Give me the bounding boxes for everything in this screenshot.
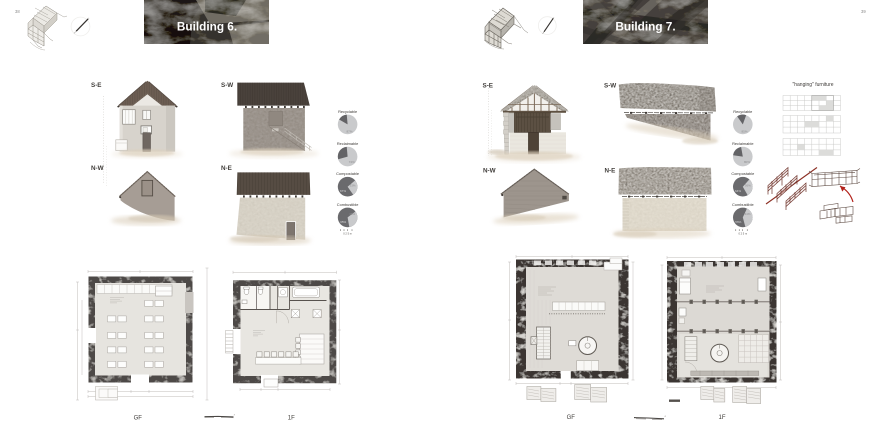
- svg-text:64%: 64%: [735, 189, 741, 193]
- svg-text:44%: 44%: [744, 212, 750, 216]
- svg-text:"hanging" furniture: "hanging" furniture: [792, 82, 833, 88]
- svg-text:Building 7.: Building 7.: [615, 20, 675, 34]
- svg-text:GF: GF: [134, 416, 143, 422]
- svg-text:GF: GF: [567, 415, 576, 421]
- svg-text:N-W: N-W: [91, 165, 104, 172]
- svg-text:N-W: N-W: [483, 167, 496, 174]
- svg-text:Compostable: Compostable: [731, 171, 754, 176]
- svg-text:Combustible: Combustible: [337, 202, 359, 207]
- svg-text:S-W: S-W: [604, 82, 616, 89]
- svg-text:N-E: N-E: [605, 167, 616, 174]
- svg-text:1F: 1F: [718, 415, 725, 421]
- svg-text:35%: 35%: [349, 212, 355, 216]
- svg-text:72%: 72%: [349, 160, 355, 164]
- svg-text:65%: 65%: [340, 220, 346, 224]
- svg-text:Reclaimable: Reclaimable: [337, 141, 358, 146]
- svg-text:39: 39: [861, 9, 866, 14]
- svg-text:Compostable: Compostable: [336, 171, 359, 176]
- svg-text:38: 38: [15, 9, 20, 14]
- svg-text:0 2 5 m: 0 2 5 m: [738, 232, 747, 236]
- svg-text:S-E: S-E: [91, 82, 102, 89]
- svg-text:36%: 36%: [745, 183, 751, 187]
- svg-text:S-W: S-W: [221, 82, 233, 89]
- svg-text:33%: 33%: [350, 183, 356, 187]
- svg-text:1F: 1F: [288, 416, 295, 422]
- svg-text:56%: 56%: [735, 220, 741, 224]
- svg-text:Reclaimable: Reclaimable: [732, 141, 753, 146]
- svg-text:0 2 5 m: 0 2 5 m: [343, 232, 352, 236]
- svg-text:N-E: N-E: [221, 165, 232, 172]
- svg-text:Combustible: Combustible: [732, 202, 754, 207]
- svg-text:Recyclable: Recyclable: [338, 109, 357, 114]
- svg-text:S-E: S-E: [483, 82, 494, 89]
- svg-text:85%: 85%: [741, 130, 747, 134]
- svg-text:Building 6.: Building 6.: [177, 20, 237, 34]
- svg-text:87%: 87%: [346, 130, 352, 134]
- svg-text:Recyclable: Recyclable: [733, 109, 752, 114]
- svg-text:80%: 80%: [744, 160, 750, 164]
- svg-text:67%: 67%: [340, 189, 346, 193]
